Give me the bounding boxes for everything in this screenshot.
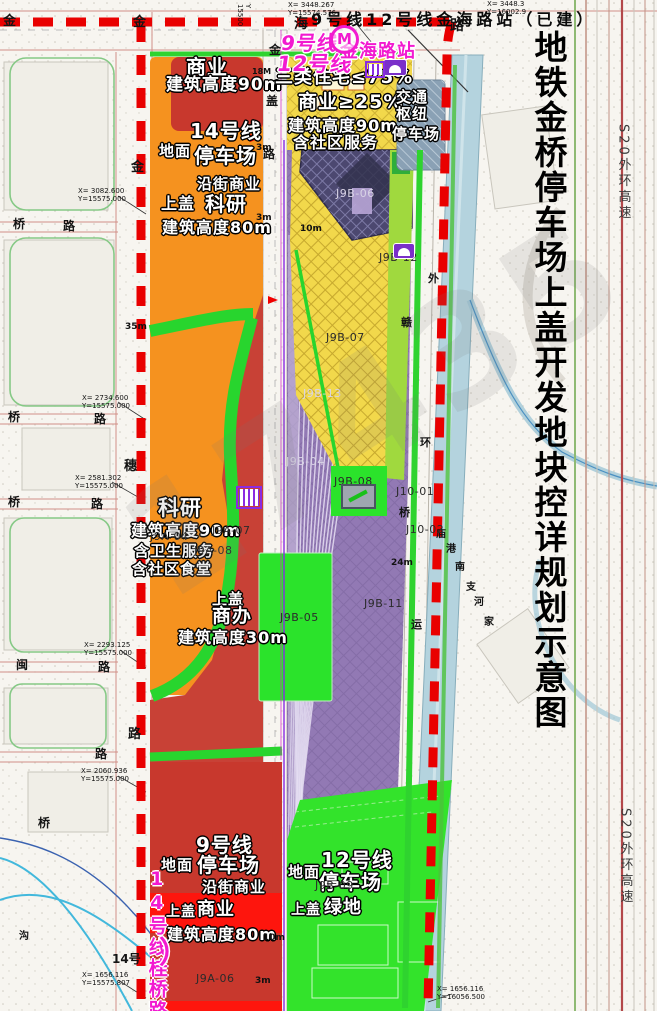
map-text: 桥	[8, 411, 20, 423]
plot-code: J10-02	[406, 524, 444, 535]
map-top-caption: 9号线12号线金海路站（已建）	[311, 6, 596, 30]
map-text: 金	[131, 161, 144, 175]
zone-label: 停车场	[194, 146, 257, 167]
zone-label: 科研	[205, 194, 247, 215]
dimension-label: 18M	[252, 68, 271, 76]
plot-code: J9B-05	[280, 612, 319, 623]
map-text: 盖	[266, 95, 278, 107]
map-text: 运	[411, 619, 422, 630]
map-text: 桥	[8, 496, 20, 508]
map-text: 金	[3, 15, 16, 29]
map-text: 桥	[399, 507, 410, 518]
zone-label: 地面	[159, 144, 191, 160]
map-text: 桥	[13, 218, 25, 230]
station-name-label: ）	[159, 938, 190, 969]
zone-label: 建筑高度90m	[166, 77, 282, 95]
coordinate-label: X= 3082.600 Y=15575.000	[78, 187, 126, 204]
coordinate-label: X= 2060.936 Y=15575.000	[81, 767, 129, 784]
zone-label: 上盖	[161, 196, 195, 213]
red-strip-lower	[150, 1001, 282, 1011]
map-text: 家	[484, 618, 494, 628]
coordinate-label: X= 1656.116 Y=15575.807	[82, 971, 130, 988]
dimension-label: 3m	[256, 214, 272, 223]
zone-label: 建筑高度30m	[178, 630, 288, 647]
coordinate-label: X= 2293.125 Y=15575.000	[84, 641, 132, 658]
metro-station-icon	[383, 59, 407, 76]
zone-label: 上盖	[291, 903, 321, 918]
map-text: 闽	[16, 659, 28, 671]
map-text: 沟	[19, 932, 29, 942]
map-text: 金	[269, 44, 281, 56]
zone-label: 交通	[396, 90, 428, 106]
map-text: 南	[455, 563, 465, 573]
map-text: 海	[294, 17, 308, 32]
zone-label: 沿街商业	[197, 177, 261, 193]
dimension-label: 24m	[391, 559, 413, 568]
highway-label: S20外环高速	[616, 124, 630, 222]
zone-label: 沿街商业	[202, 880, 266, 896]
map-text: 支	[466, 583, 476, 593]
dimension-label: 10m	[300, 225, 322, 234]
zone-label: 14号线	[190, 121, 262, 142]
plot-code: J9A-06	[196, 973, 235, 984]
dimension-label: 35m	[125, 323, 147, 332]
zone-label: 含社区服务	[293, 135, 378, 152]
coordinate-label: X= 2734.600 Y=15575.000	[82, 394, 130, 411]
zone-label: 停车场	[392, 127, 440, 143]
dimension-label: 3m	[255, 977, 271, 986]
metro-station-icon	[393, 243, 415, 259]
zone-label: 枢纽	[396, 107, 428, 123]
zone-label: 上盖	[166, 905, 196, 920]
map-text: 路	[98, 661, 110, 673]
dimension-label: 3m	[256, 144, 272, 153]
map-text: 港	[446, 545, 456, 555]
map-title: 地铁金桥停车场上盖开发地块控详规划示意图	[524, 30, 572, 730]
map-text: 金	[133, 16, 146, 30]
map-text: 路	[63, 220, 75, 232]
coordinate-label: X= 1656.116 Y=16056.500	[437, 985, 485, 1002]
dimension-label: 10m	[263, 934, 285, 943]
plot-code: J9B-06	[336, 188, 375, 199]
zone-label: 商业	[197, 901, 235, 920]
map-text: 路	[94, 413, 106, 425]
zone-label: 绿地	[324, 899, 362, 918]
planning-map: 17435 9号线12号线金海路站（已建） 地铁金桥停车场上盖开发地块控详规划示…	[0, 0, 657, 1011]
zone-label: 12号线	[321, 850, 393, 871]
plot-code: J9B-11	[364, 598, 403, 609]
map-text: 路	[95, 748, 107, 760]
map-text: 14号	[112, 953, 141, 965]
parking-facility-icon	[365, 61, 385, 78]
parking-facility-icon	[236, 486, 262, 509]
map-text: 河	[474, 598, 484, 608]
highway-label: S20外环高速	[618, 808, 632, 906]
coordinate-label: Y 15500	[235, 4, 252, 26]
plot-code: J9B-09	[315, 880, 354, 891]
map-text: 路	[128, 728, 141, 742]
zone-label: 停车场	[197, 855, 260, 876]
map-text: 桥	[38, 817, 50, 829]
zone-label: 商业≥25%	[298, 93, 403, 113]
substation-icon	[341, 484, 376, 509]
